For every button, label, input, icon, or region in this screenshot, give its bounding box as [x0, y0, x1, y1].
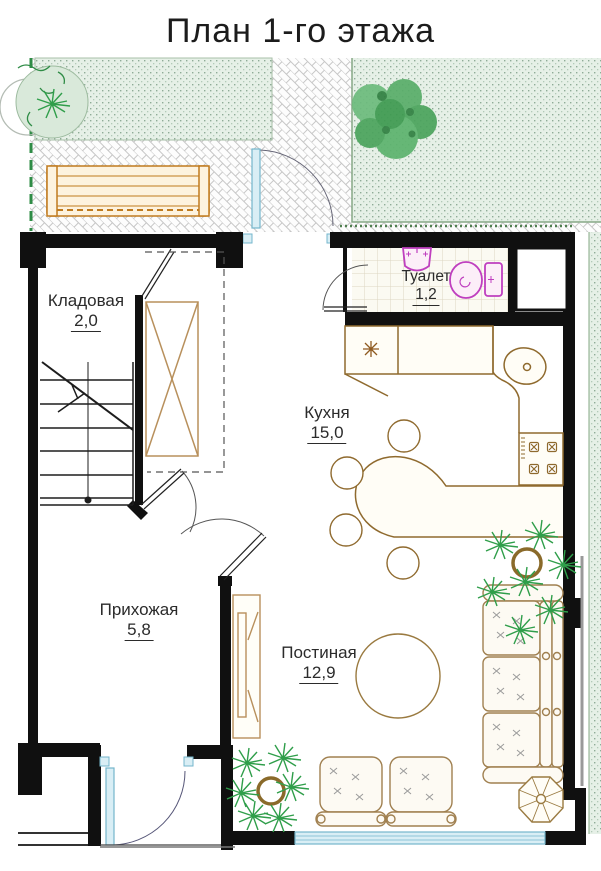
kitchen-sink [501, 344, 550, 388]
room-label-kitchen: Кухня 15,0 [304, 404, 350, 444]
hall-kitchen-door [141, 469, 196, 532]
floor-plan-drawing [0, 0, 601, 871]
kitchen-counter-top [345, 326, 493, 374]
room-name: Прихожая [100, 601, 179, 619]
staircase [40, 362, 133, 505]
room-name: Постиная [281, 644, 357, 662]
entrance-door [100, 757, 221, 845]
tv-stand [233, 595, 260, 738]
closet [516, 248, 567, 310]
hall-living-door [181, 519, 266, 580]
room-name: Кухня [304, 404, 350, 422]
room-area: 15,0 [307, 423, 346, 444]
armchair-right [386, 757, 456, 826]
room-label-living: Постиная 12,9 [281, 644, 357, 684]
lawn-right-strip [589, 232, 601, 834]
armchair-left [316, 757, 386, 826]
wardrobe [146, 302, 198, 456]
living-room-window [295, 832, 545, 844]
room-area: 5,8 [124, 620, 154, 641]
potted-plant-entry [226, 743, 309, 832]
toilet-bowl [450, 262, 502, 298]
tree-deciduous [0, 65, 88, 138]
cooktop [519, 433, 563, 485]
storage-door [142, 249, 174, 299]
octagonal-side-table [519, 777, 563, 822]
room-area: 1,2 [412, 286, 440, 305]
room-area: 2,0 [71, 311, 101, 332]
room-area: 12,9 [299, 663, 338, 684]
kitchen-units [345, 326, 563, 537]
room-label-storage: Кладовая 2,0 [48, 292, 124, 332]
room-label-toilet: Туалет 1,2 [401, 269, 450, 306]
floor-plan-title: План 1-го этажа [0, 12, 601, 51]
floor-plan: План 1-го этажа Кладовая 2,0 Туалет 1,2 … [0, 0, 601, 871]
room-name: Туалет [401, 269, 450, 285]
room-name: Кладовая [48, 292, 124, 310]
room-label-hall: Прихожая 5,8 [100, 601, 179, 641]
garden-bench [47, 166, 209, 216]
round-rug [356, 634, 440, 718]
